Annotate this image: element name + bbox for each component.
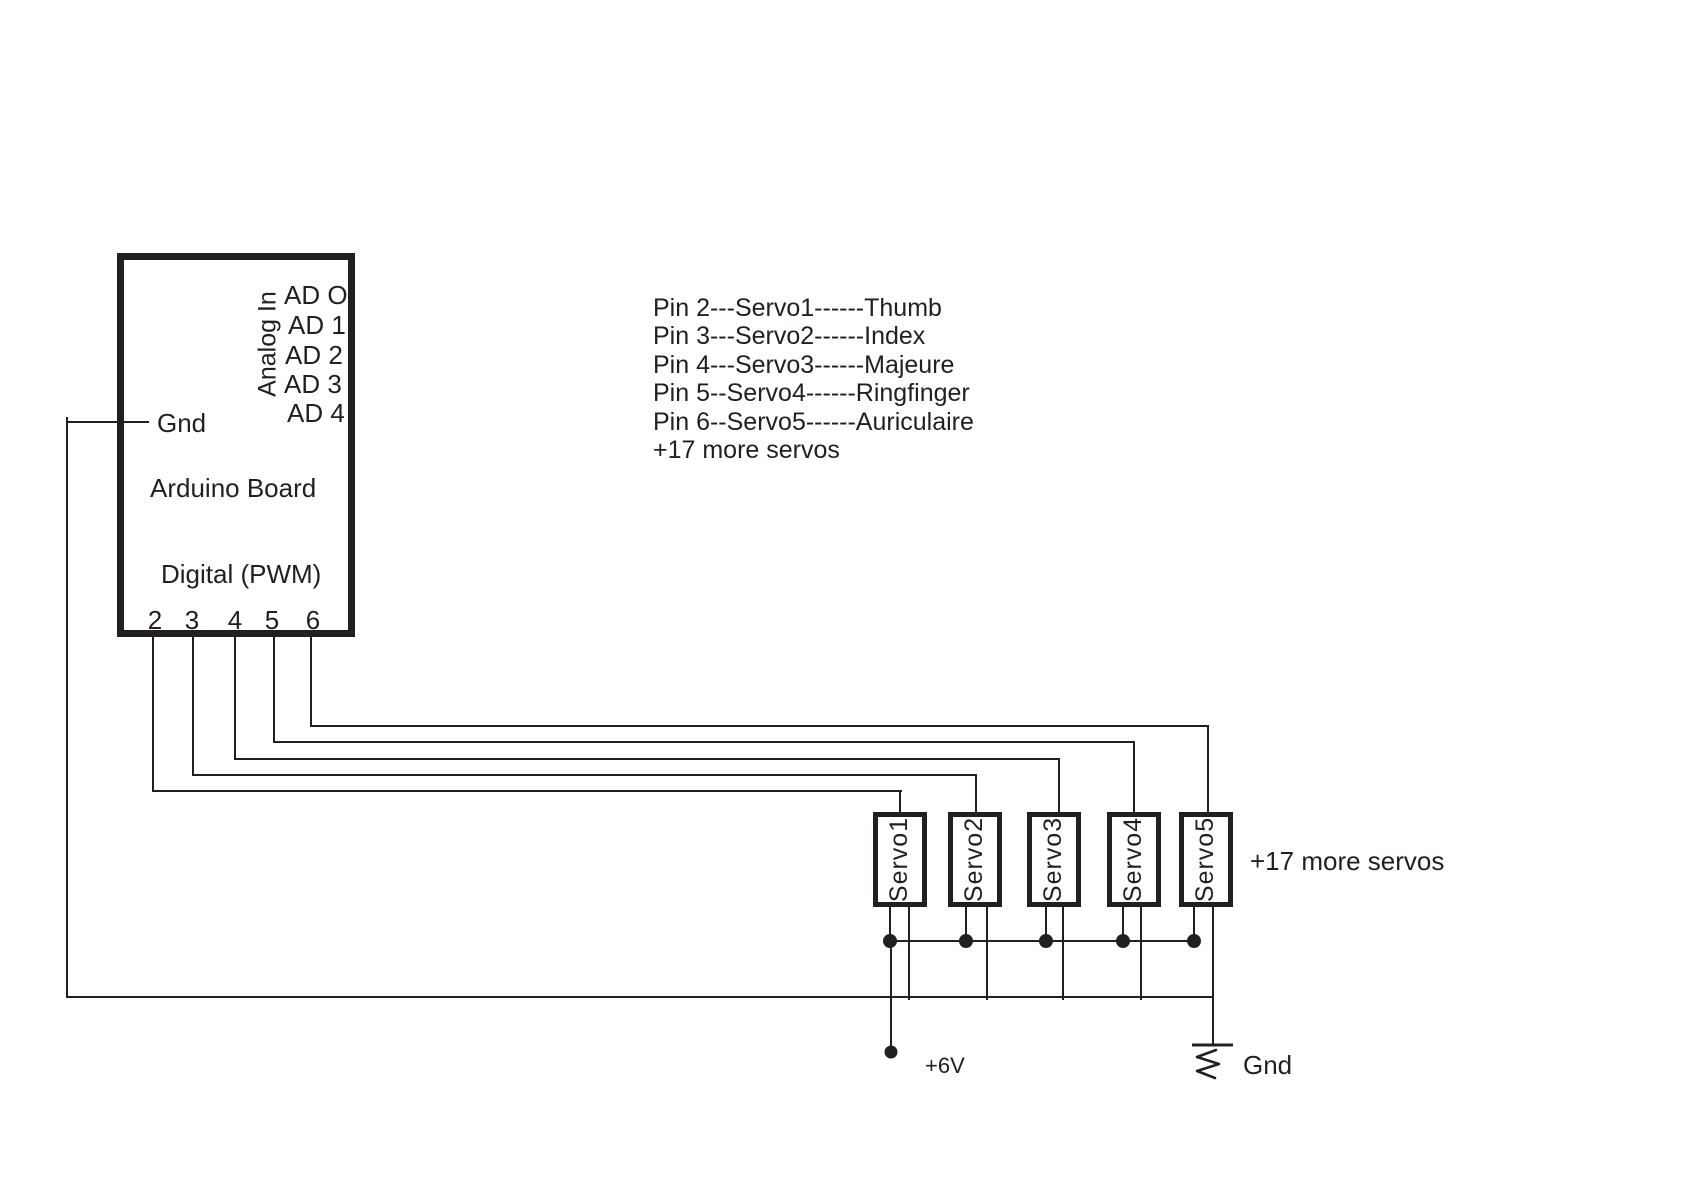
digital-pin-4-label: 4 (228, 605, 242, 636)
wire-pin5-horizontal (273, 741, 1135, 743)
servo2-label: Servo2 (961, 817, 990, 902)
analog-pin-ad3-label: AD 3 (284, 371, 342, 397)
wire-pin6-horizontal (310, 725, 1209, 727)
pin-mapping-line: Pin 3---Servo2------Index (653, 322, 974, 350)
pin-mapping-line: Pin 5--Servo4------Ringfinger (653, 379, 974, 407)
wire-servo3-gnd-lead (1062, 903, 1064, 1000)
arduino-board-title: Arduino Board (150, 475, 316, 501)
wire-servo4-feed (1133, 741, 1135, 814)
servo2-box: Servo2 (948, 812, 1002, 907)
wire-servo1-gnd-lead (908, 903, 910, 1000)
analog-pin-ad0-label: AD O (284, 282, 348, 308)
servo3-box: Servo3 (1027, 812, 1081, 907)
arduino-gnd-pin-label: Gnd (157, 410, 206, 436)
wire-servo4-gnd-lead (1140, 903, 1142, 1000)
servo4-box: Servo4 (1107, 812, 1161, 907)
wire-servo3-feed (1058, 758, 1060, 814)
pin-mapping-line: Pin 6--Servo5------Auriculaire (653, 408, 974, 436)
analog-pin-ad2-label: AD 2 (285, 342, 343, 368)
servo5-box: Servo5 (1179, 812, 1233, 907)
digital-pin-3-label: 3 (185, 605, 199, 636)
more-servos-note: +17 more servos (1250, 848, 1444, 874)
wire-pin4-drop (234, 636, 236, 760)
wire-power-terminal-drop (890, 940, 892, 1052)
wire-arduino-gnd-stub (66, 421, 149, 423)
analog-pin-ad4-label: AD 4 (287, 400, 345, 426)
wire-servo5-gnd-lead-to-ground (1212, 903, 1214, 1045)
wire-pin5-drop (273, 636, 275, 743)
ground-symbol-icon (1188, 1040, 1240, 1090)
wire-gnd-bus (66, 996, 1214, 998)
wire-servo2-feed (975, 774, 977, 814)
power-terminal-dot (885, 1046, 898, 1059)
junction-dot-servo5-power (1187, 934, 1201, 948)
digital-pin-5-label: 5 (265, 605, 279, 636)
pin-mapping-line: +17 more servos (653, 436, 974, 464)
junction-dot-servo4-power (1116, 934, 1130, 948)
servo3-label: Servo3 (1040, 817, 1069, 902)
servo5-label: Servo5 (1192, 817, 1221, 902)
wire-pin2-drop (152, 636, 154, 792)
pin-mapping-line: Pin 4---Servo3------Majeure (653, 351, 974, 379)
junction-dot-servo3-power (1039, 934, 1053, 948)
wire-gnd-left-riser (66, 417, 68, 998)
wire-servo1-feed (899, 790, 901, 814)
servo1-label: Servo1 (886, 817, 915, 902)
circuit-diagram: Analog In AD O AD 1 AD 2 AD 3 AD 4 Gnd A… (0, 0, 1684, 1191)
wire-servo5-feed (1207, 725, 1209, 814)
servo4-label: Servo4 (1120, 817, 1149, 902)
pin-mapping-line: Pin 2---Servo1------Thumb (653, 294, 974, 322)
servo1-box: Servo1 (873, 812, 927, 907)
ground-terminal-label: Gnd (1243, 1052, 1292, 1078)
wire-pin4-horizontal (234, 758, 1060, 760)
wire-pin2-horizontal (152, 790, 902, 792)
digital-pin-2-label: 2 (148, 605, 162, 636)
wire-pin3-drop (192, 636, 194, 776)
digital-pin-6-label: 6 (306, 605, 320, 636)
wire-servo2-gnd-lead (986, 903, 988, 1000)
power-terminal-label: +6V (925, 1055, 965, 1077)
pin-mapping-legend: Pin 2---Servo1------Thumb Pin 3---Servo2… (653, 294, 974, 464)
analog-pin-ad1-label: AD 1 (288, 312, 346, 338)
digital-pwm-section-label: Digital (PWM) (161, 561, 321, 587)
junction-dot-servo2-power (959, 934, 973, 948)
wire-pin3-horizontal (192, 774, 977, 776)
analog-in-section-label: Analog In (256, 291, 281, 397)
wire-pin6-drop (310, 636, 312, 727)
